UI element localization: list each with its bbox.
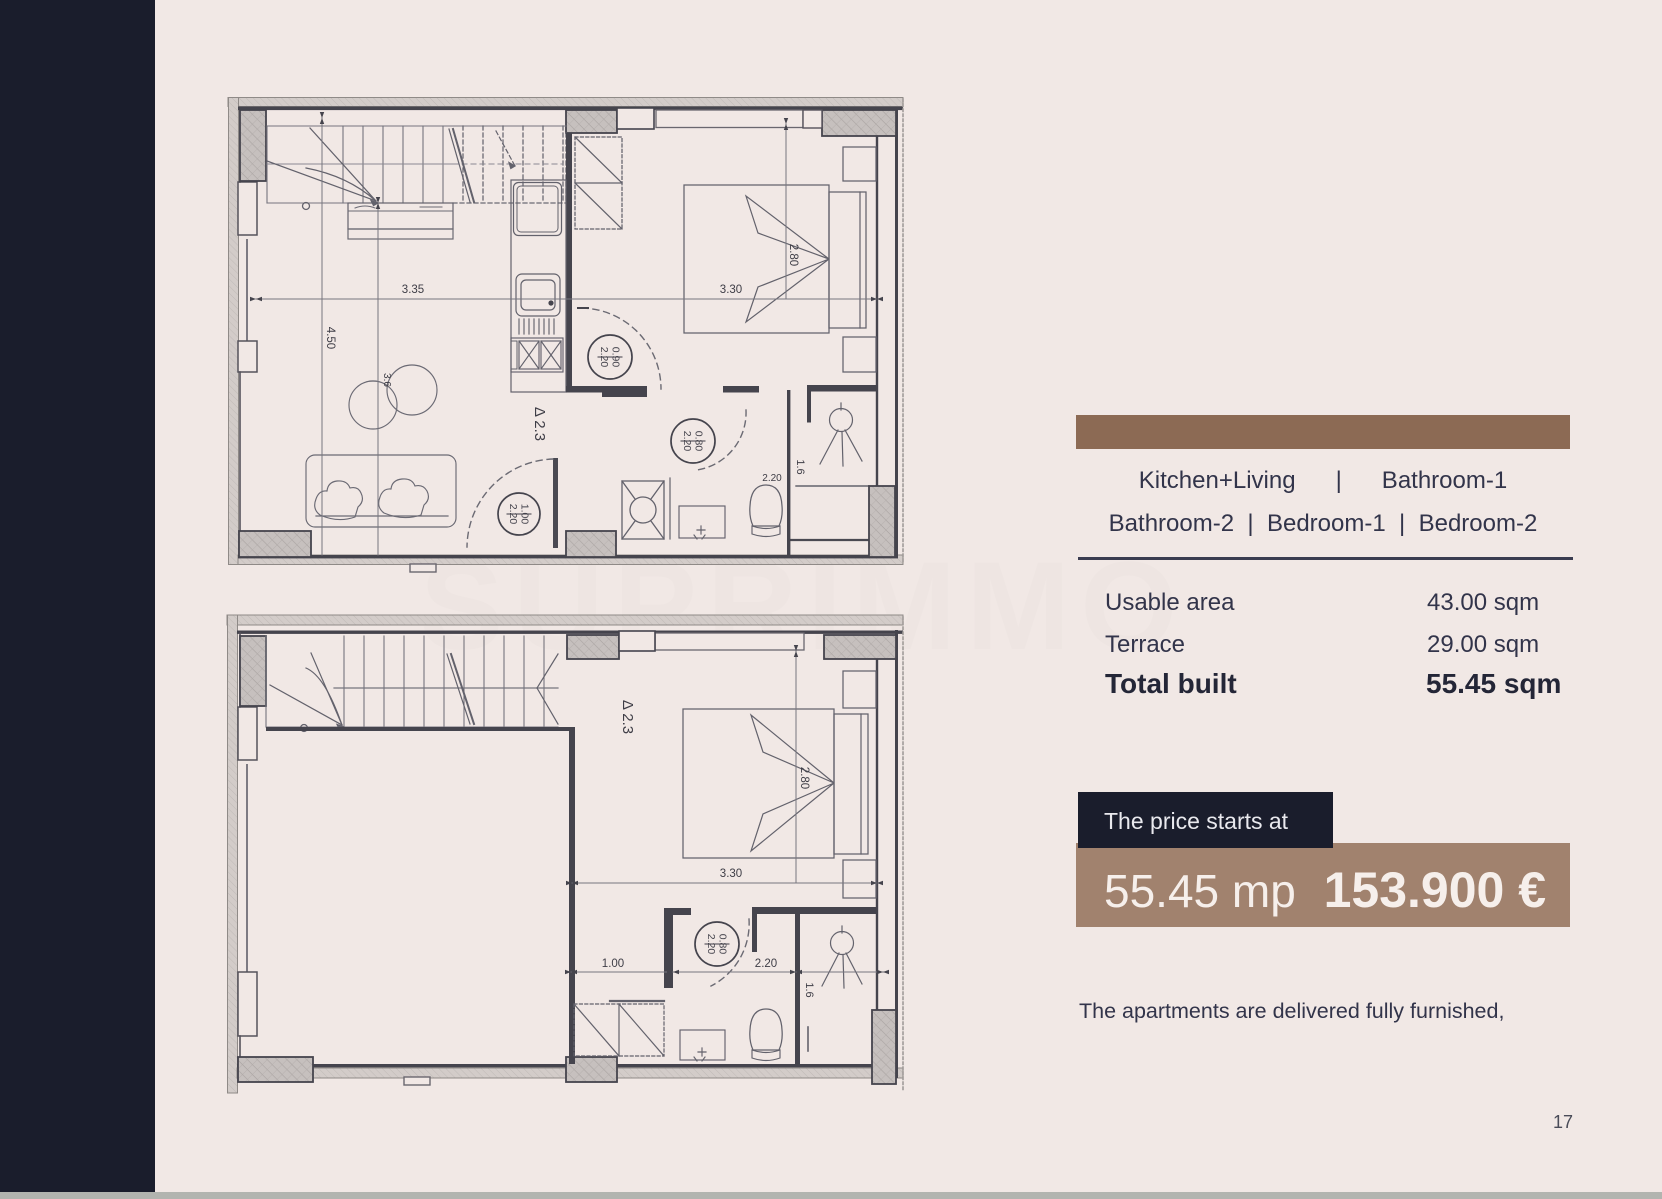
svg-text:3.30: 3.30 <box>720 868 742 880</box>
svg-text:2.20: 2.20 <box>755 958 777 970</box>
svg-text:Δ 2.3: Δ 2.3 <box>531 407 548 441</box>
svg-text:1.00: 1.00 <box>602 958 624 970</box>
svg-text:3.35: 3.35 <box>402 284 424 296</box>
svg-text:3.30: 3.30 <box>720 284 742 296</box>
svg-text:3.6: 3.6 <box>381 373 392 387</box>
svg-text:4.50: 4.50 <box>324 327 336 349</box>
svg-text:2.20: 2.20 <box>762 473 782 484</box>
svg-text:Δ 2.3: Δ 2.3 <box>619 700 636 734</box>
svg-text:2.80: 2.80 <box>787 244 799 266</box>
svg-text:1.6: 1.6 <box>803 982 815 997</box>
svg-text:2.80: 2.80 <box>798 767 810 789</box>
svg-text:1.6: 1.6 <box>794 459 806 474</box>
